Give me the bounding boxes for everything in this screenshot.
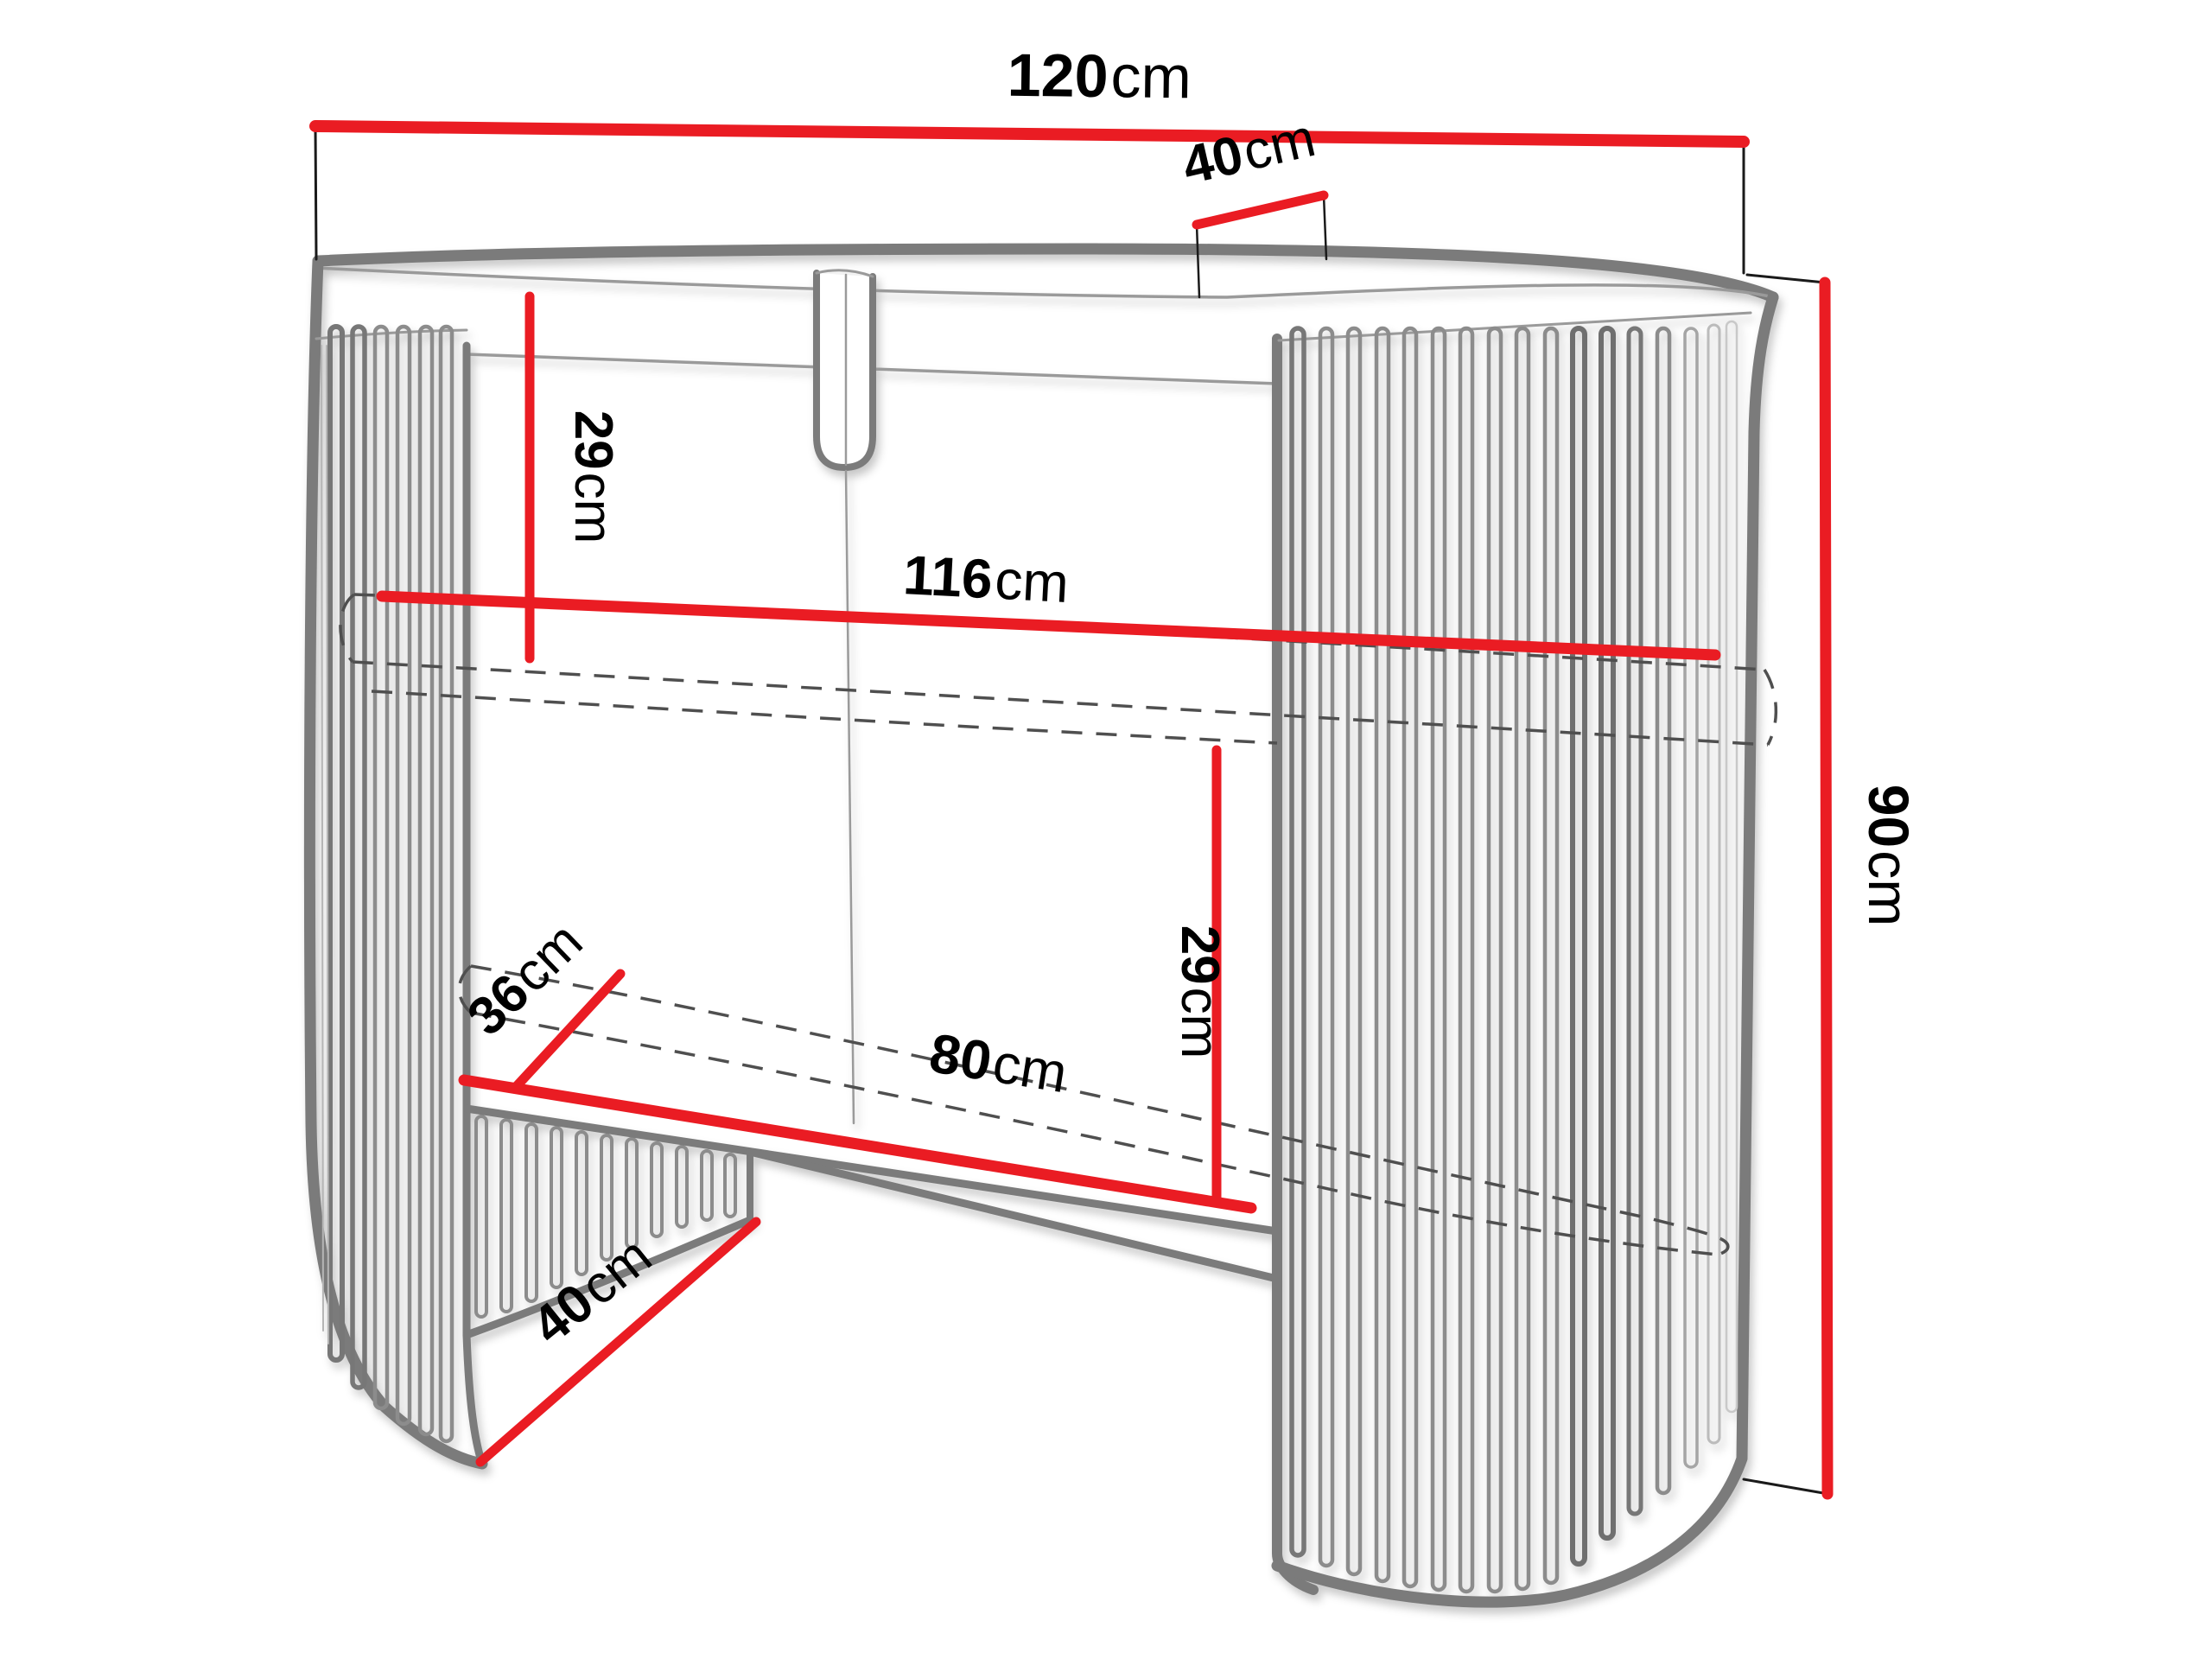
dim-kneehole-width-label: 80cm xyxy=(925,1021,1071,1104)
dim-total-height-ext-bottom xyxy=(1744,1479,1828,1494)
dim-kneehole-width-line xyxy=(464,1080,1251,1208)
dim-top-depth-label: 40cm xyxy=(1177,108,1320,196)
right-pedestal-outline xyxy=(1277,297,1773,1602)
upper-shelf-right-tip-dashed xyxy=(1764,670,1776,745)
dimension-annotations: 120cm 40cm 29cm 116cm xyxy=(315,41,1921,1494)
left-pedestal-slats xyxy=(330,327,452,1441)
lower-shelf-back-dashed xyxy=(471,966,1721,1239)
dim-top-width-ext-left xyxy=(315,126,316,259)
dim-total-height: 90cm xyxy=(1744,275,1921,1494)
dim-lower-clearance-label: 29cm xyxy=(1170,925,1230,1059)
dim-top-depth-line xyxy=(1197,195,1324,225)
tabletop-back-edge xyxy=(318,249,1773,297)
dim-lower-clearance: 29cm xyxy=(1170,750,1230,1201)
dim-top-width-label: 120cm xyxy=(1007,41,1192,111)
diagram-stage: 120cm 40cm 29cm 116cm xyxy=(0,0,2212,1659)
upper-shelf-thickness-dashed xyxy=(372,691,1277,743)
dim-arch-depth: 36cm xyxy=(456,912,620,1087)
left-pedestal-edge-lines xyxy=(321,346,328,1344)
tabletop-front-edge xyxy=(316,268,1773,297)
right-pedestal-slats xyxy=(1292,321,1737,1592)
handle-notch xyxy=(817,273,873,467)
dim-total-height-line xyxy=(1825,283,1827,1494)
dim-top-depth-ext-left xyxy=(1197,225,1199,297)
left-pedestal-band-line xyxy=(316,330,467,339)
dim-base-opening: 40cm xyxy=(480,1222,756,1462)
door-seam xyxy=(846,471,854,1123)
right-pedestal-left-edge xyxy=(1277,339,1313,1590)
dim-total-height-label: 90cm xyxy=(1857,785,1921,926)
dim-top-width: 120cm xyxy=(315,41,1744,273)
dim-inner-width-label: 116cm xyxy=(902,543,1071,614)
furniture-dimension-diagram: 120cm 40cm 29cm 116cm xyxy=(0,0,2212,1659)
dim-base-opening-label: 40cm xyxy=(521,1226,663,1357)
dim-upper-clearance-label: 29cm xyxy=(563,410,623,544)
dim-top-width-line xyxy=(315,126,1744,142)
dim-total-height-ext-top xyxy=(1747,275,1825,283)
dim-top-depth: 40cm xyxy=(1177,108,1326,297)
